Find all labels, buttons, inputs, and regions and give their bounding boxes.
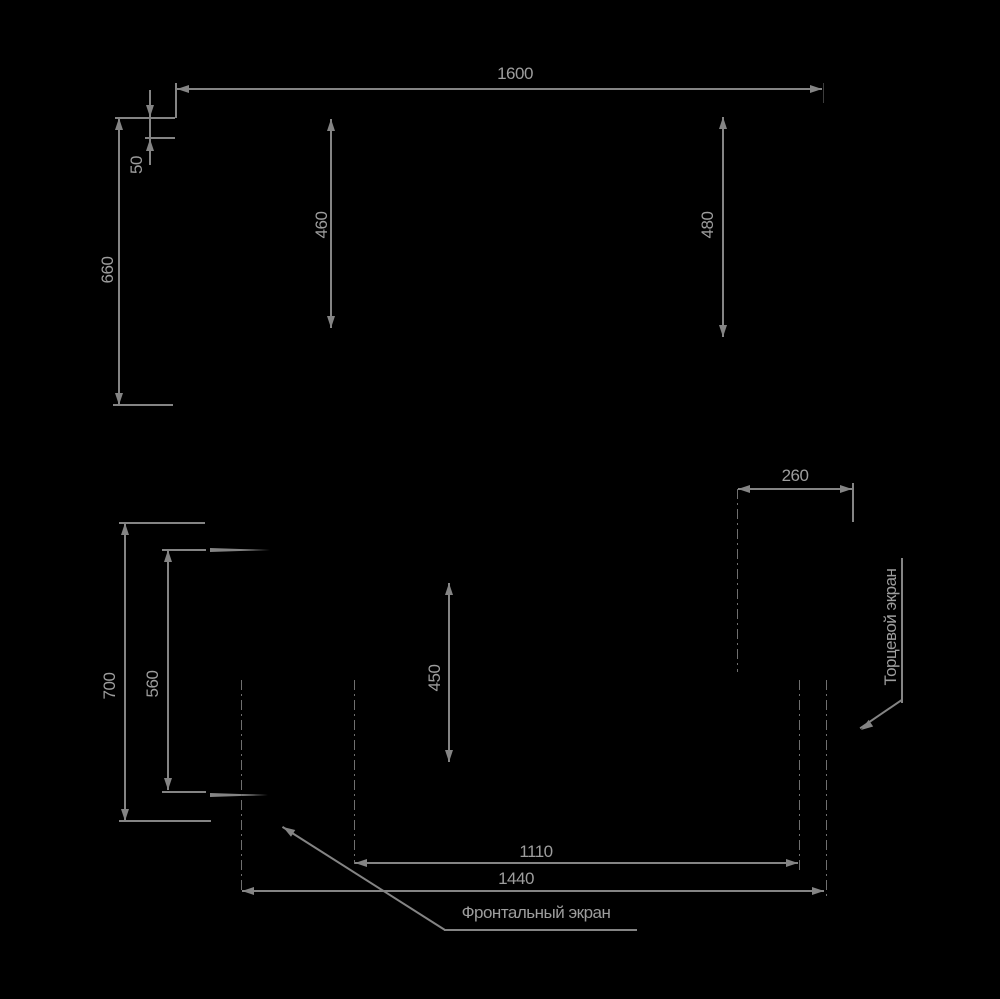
- projection-line-outer-left: [241, 680, 242, 892]
- dim-560-ext-top: [162, 549, 206, 551]
- dim-480-arrow-down: [719, 325, 727, 337]
- dim-260-arrow-left: [738, 485, 750, 493]
- dim-480-arrow-up: [719, 117, 727, 129]
- projection-line-inner-left: [354, 680, 355, 864]
- dim-450-arrow-up: [445, 583, 453, 595]
- dim-260-label: 260: [765, 467, 825, 485]
- dim-660-arrow-up: [115, 118, 123, 130]
- dim-50-label: 50: [129, 150, 145, 180]
- dim-480-line: [722, 117, 724, 337]
- dim-700-line: [124, 523, 126, 821]
- dim-1440-arrow-right: [812, 887, 824, 895]
- dim-1110-arrow-right: [786, 859, 798, 867]
- dim-1440-label: 1440: [486, 870, 546, 888]
- projection-line-inner-right: [799, 680, 800, 870]
- dim-660-ext-bottom: [113, 404, 173, 406]
- dim-1600-ext-right: [823, 83, 824, 103]
- dim-560-arrow-down: [164, 778, 172, 790]
- dim-1600-ext-left: [175, 83, 177, 118]
- frontal-screen-leader-line: [282, 826, 445, 931]
- dim-560-ext-bottom: [162, 791, 206, 793]
- dim-660-label: 660: [100, 252, 116, 288]
- frontal-screen-label: Фронтальный экран: [458, 904, 614, 922]
- dim-1440-arrow-left: [242, 887, 254, 895]
- projection-line-outer-right: [826, 680, 827, 898]
- dim-700-label: 700: [102, 668, 118, 704]
- dim-50-ext-top: [115, 117, 175, 119]
- dim-260-arrow-right: [840, 485, 852, 493]
- dim-1440-line: [242, 890, 824, 892]
- dim-700-arrow-up: [121, 523, 129, 535]
- dim-1600-arrow-left: [177, 85, 189, 93]
- panel-edge-bottom: [210, 793, 268, 797]
- dim-1110-arrow-left: [355, 859, 367, 867]
- dim-450-line: [448, 583, 450, 762]
- dim-480-label: 480: [700, 207, 716, 243]
- dim-450-label: 450: [427, 660, 443, 696]
- dim-660-line: [118, 118, 120, 405]
- dim-1600-arrow-right: [810, 85, 822, 93]
- dim-260-ext-right: [852, 483, 854, 522]
- dim-700-ext-top: [119, 522, 205, 524]
- dim-450-arrow-down: [445, 750, 453, 762]
- dim-460-arrow-up: [327, 119, 335, 131]
- technical-drawing: 1600 50 660 460 480 260 700 560 450: [0, 0, 1000, 999]
- dim-50-line: [149, 90, 151, 165]
- dim-50-arrow-down: [146, 105, 154, 117]
- dim-1110-line: [355, 862, 798, 864]
- dim-560-arrow-up: [164, 550, 172, 562]
- panel-edge-top: [210, 548, 270, 552]
- end-screen-leader-line-vertical: [901, 558, 903, 703]
- dim-460-arrow-down: [327, 316, 335, 328]
- dim-1110-label: 1110: [506, 843, 566, 861]
- dim-260-ext-left: [737, 489, 738, 672]
- dim-460-label: 460: [314, 207, 330, 243]
- dim-1600-label: 1600: [480, 65, 550, 83]
- dim-1600-line: [177, 88, 822, 90]
- dim-50-arrow-up: [146, 139, 154, 151]
- frontal-screen-underline: [444, 929, 637, 931]
- dim-700-ext-bottom: [119, 820, 211, 822]
- dim-260-line: [738, 488, 852, 490]
- dim-560-line: [167, 550, 169, 790]
- dim-560-label: 560: [145, 666, 161, 702]
- end-screen-label: Торцевой экран: [882, 565, 900, 689]
